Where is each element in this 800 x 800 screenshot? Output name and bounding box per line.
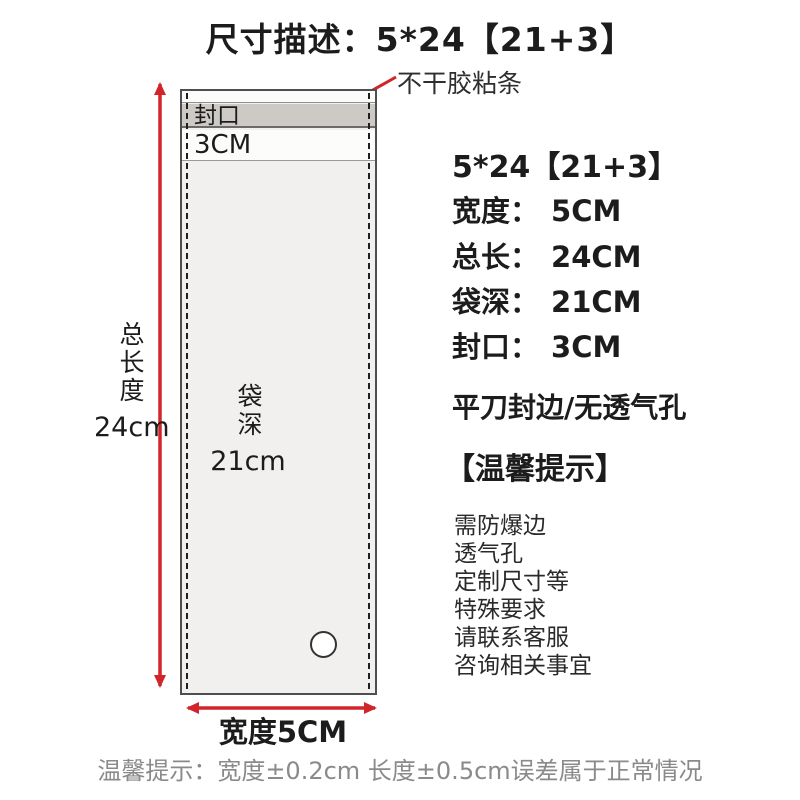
- left-seam-dashed-line: [186, 93, 188, 689]
- tips-list: 需防爆边 透气孔 定制尺寸等 特殊要求 请联系客服 咨询相关事宜: [454, 512, 592, 680]
- spec-heading: 5*24【21+3】: [452, 142, 678, 186]
- spec-label: 宽度：: [452, 194, 539, 228]
- tip-item: 透气孔: [454, 540, 592, 568]
- bag-depth-dimension: 袋深 21cm: [196, 383, 300, 477]
- tip-item: 请联系客服: [454, 624, 592, 652]
- spec-value: 21CM: [551, 285, 642, 319]
- total-length-dimension: 总长度 24cm: [94, 321, 166, 443]
- spec-row-depth: 袋深：21CM: [452, 279, 642, 321]
- tip-item: 咨询相关事宜: [454, 652, 592, 680]
- spec-label: 封口：: [452, 330, 539, 364]
- spec-row-seal: 封口：3CM: [452, 324, 621, 366]
- spec-label: 总长：: [452, 240, 539, 274]
- spec-value: 3CM: [551, 330, 621, 364]
- tip-item: 需防爆边: [454, 512, 592, 540]
- bag-width-label: 宽度5CM: [188, 709, 378, 751]
- bag-depth-label: 袋深: [230, 383, 266, 439]
- edge-seal-note: 平刀封边/无透气孔: [452, 386, 686, 426]
- total-length-value: 24cm: [94, 412, 166, 443]
- spec-row-width: 宽度：5CM: [452, 188, 621, 230]
- tolerance-note: 温馨提示：宽度±0.2cm 长度±0.5cm误差属于正常情况: [0, 751, 800, 786]
- adhesive-strip-callout-label: 不干胶粘条: [397, 64, 522, 100]
- tip-item: 定制尺寸等: [454, 568, 592, 596]
- bag-top-edge-strip: [182, 91, 375, 103]
- spec-value: 24CM: [551, 240, 642, 274]
- bag-diagram: 封口 3CM 袋深 21cm: [180, 89, 377, 695]
- spec-row-total-length: 总长：24CM: [452, 234, 642, 276]
- adhesive-seal-strip: 封口: [182, 104, 375, 128]
- seal-label: 封口: [182, 104, 375, 128]
- tip-item: 特殊要求: [454, 596, 592, 624]
- seal-flap-strip: 3CM: [182, 130, 375, 161]
- tips-heading: 【温馨提示】: [445, 444, 625, 488]
- seal-height-label: 3CM: [182, 130, 375, 160]
- page-title: 尺寸描述：5*24【21+3】: [90, 13, 750, 61]
- spec-label: 袋深：: [452, 285, 539, 319]
- hang-hole: [310, 631, 337, 658]
- right-seam-dashed-line: [368, 93, 370, 689]
- spec-value: 5CM: [551, 194, 621, 228]
- total-length-label: 总长度: [112, 321, 148, 405]
- bag-depth-value: 21cm: [196, 446, 300, 477]
